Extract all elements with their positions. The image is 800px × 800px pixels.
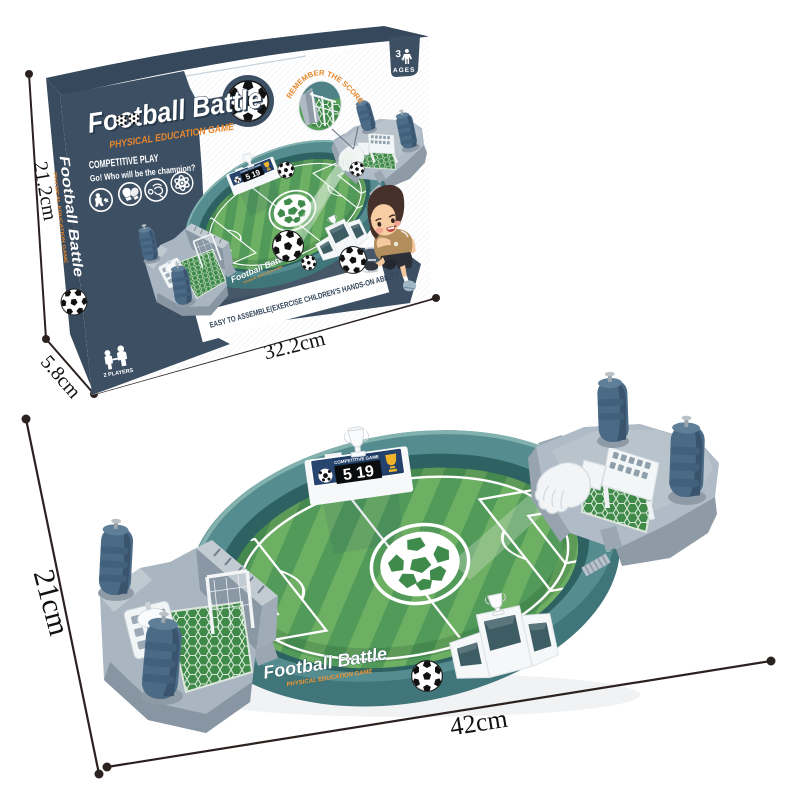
svg-text:AGES: AGES	[393, 67, 416, 74]
